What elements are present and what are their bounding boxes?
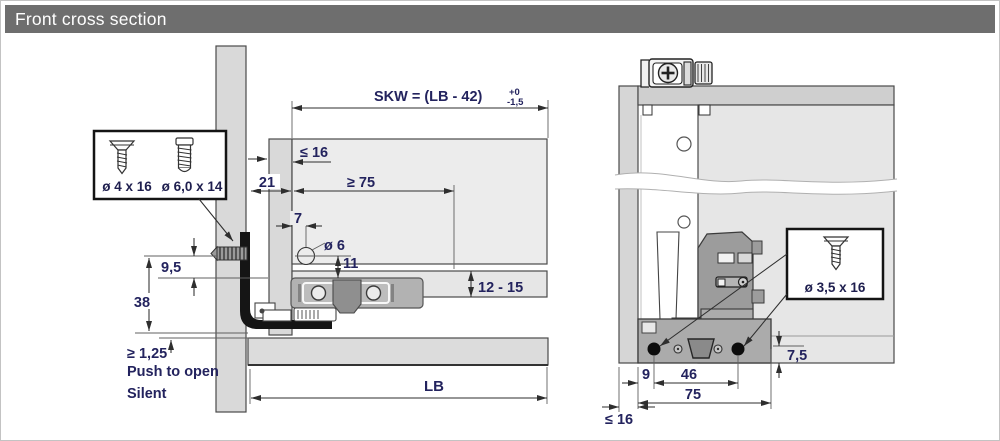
screw-callout-box-side: ø 3,5 x 16 [787, 229, 883, 299]
screw-2-label: ø 6,0 x 14 [162, 179, 223, 194]
dim-skw-formula: SKW = (LB - 42) [374, 89, 483, 105]
dim-reveal-max: ≤ 16 [300, 145, 328, 161]
dim-cabinet-width-lb: LB [424, 378, 444, 395]
dim-front-thickness: ≤ 16 [605, 412, 633, 428]
roller-icon [312, 286, 326, 300]
bottom-rail [638, 309, 771, 363]
dim-min-75: ≥ 75 [347, 175, 375, 191]
cabinet-panel [216, 46, 246, 412]
fixing-screw-position [648, 343, 661, 356]
dim-gap-21: 21 [259, 175, 275, 191]
hole [678, 216, 690, 228]
profile-channel [657, 232, 679, 319]
latch-block [333, 280, 361, 313]
screw-1-label: ø 4 x 16 [102, 179, 152, 194]
front-panel [619, 86, 638, 363]
dim-hole-offset-7: 7 [294, 211, 302, 227]
catalog-page: Front cross section [0, 0, 1000, 441]
side-view-drawing: ø 3,5 x 16 7,5 9 46 75 ≤ 16 [602, 59, 897, 428]
euro-screw-icon [211, 247, 247, 260]
dim-depth-75: 75 [685, 387, 701, 403]
dim-screw-offset-9: 9 [642, 367, 650, 383]
hole [677, 137, 691, 151]
feature-push-to-open: Push to open [127, 364, 219, 380]
feature-silent: Silent [127, 386, 167, 402]
dim-screw-spacing-46: 46 [681, 367, 697, 383]
dim-bottom-thickness: 12 - 15 [478, 280, 523, 296]
pan-head-screw-icon [176, 138, 193, 172]
cabinet-bottom-panel [248, 338, 548, 365]
dim-hole-dia: ø 6 [324, 238, 345, 254]
dim-hole-height-11: 11 [343, 256, 358, 272]
dim-rail-height: 7,5 [787, 348, 807, 364]
dim-9-5: 9,5 [161, 260, 181, 276]
dim-gap-min: ≥ 1,25 [127, 346, 167, 362]
dim-skw-tol-lower: -1,5 [507, 97, 524, 108]
top-profile [638, 86, 894, 105]
screw-callout-box: ø 4 x 16 ø 6,0 x 14 [94, 131, 226, 199]
screw-label: ø 3,5 x 16 [805, 280, 866, 295]
fixing-screw-position [732, 343, 745, 356]
dim-38: 38 [134, 295, 150, 311]
technical-drawing: SKW = (LB - 42) +0 -1,5 ≤ 16 21 ≥ 75 7 [1, 1, 1000, 441]
roller-icon [367, 286, 381, 300]
front-view-drawing: SKW = (LB - 42) +0 -1,5 ≤ 16 21 ≥ 75 7 [94, 46, 548, 412]
cabinet-fixing-fitting [641, 59, 712, 87]
